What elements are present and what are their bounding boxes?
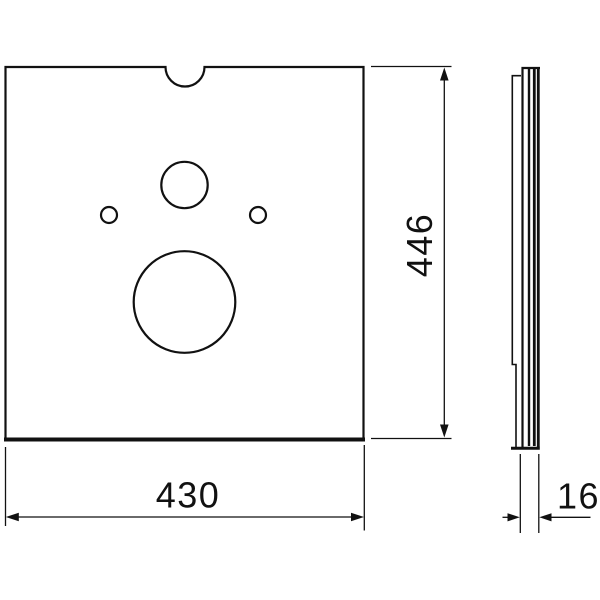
hole-medium-center [161, 162, 207, 208]
arrowhead-down-icon [440, 425, 449, 438]
side-thin-layer [512, 76, 521, 447]
dimension-height: 446 [371, 67, 452, 439]
dimension-label-width: 430 [156, 475, 221, 516]
hole-small-left [101, 207, 117, 223]
arrowhead-right-icon [351, 513, 364, 522]
dimension-width: 430 [6, 445, 365, 531]
arrowhead-up-icon [440, 68, 449, 81]
dimension-label-thickness: 16 [557, 476, 600, 517]
arrowhead-left-icon [6, 513, 19, 522]
plate-outline-with-top-notch [6, 67, 364, 440]
hole-large-center [134, 251, 236, 353]
arrowhead-inward-right-icon [508, 513, 520, 521]
hole-small-right [250, 207, 266, 223]
side-profile-view [511, 68, 540, 449]
technical-drawing-canvas: 446 430 16 [0, 0, 600, 600]
dimension-thickness: 16 [503, 454, 600, 533]
arrowhead-inward-left-icon [539, 513, 551, 521]
front-view [4, 67, 365, 440]
insulation-plate-drawing: 446 430 16 [0, 0, 600, 600]
dimension-label-height: 446 [399, 213, 440, 278]
